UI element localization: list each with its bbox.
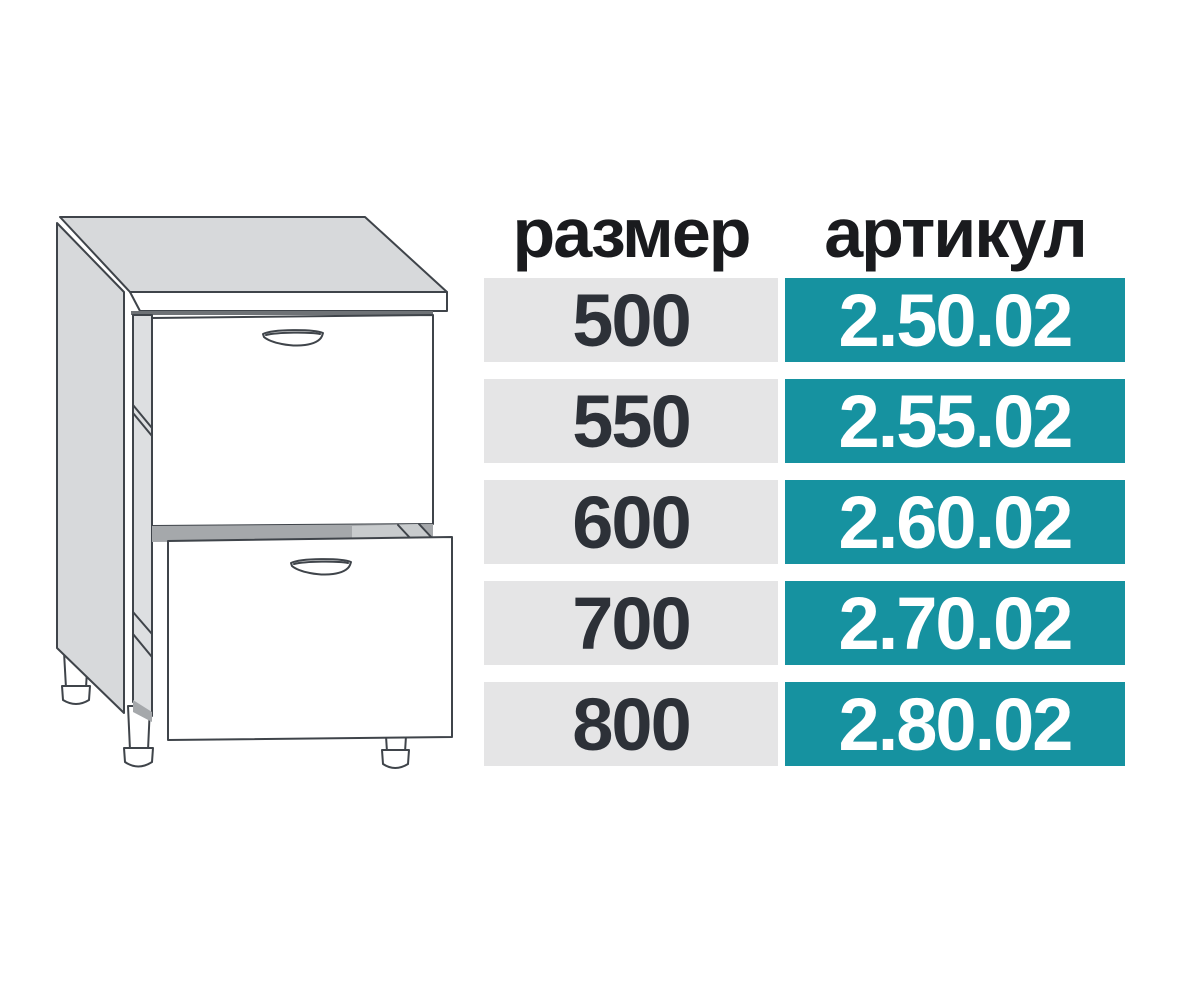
article-cell: 2.70.02 xyxy=(785,581,1125,665)
table-row: 500 2.50.02 xyxy=(484,278,1125,362)
size-cell: 500 xyxy=(484,278,778,362)
cabinet-illustration xyxy=(40,190,470,790)
column-header-size: размер xyxy=(484,193,778,273)
size-cell: 800 xyxy=(484,682,778,766)
size-cell: 600 xyxy=(484,480,778,564)
article-cell: 2.80.02 xyxy=(785,682,1125,766)
size-cell: 700 xyxy=(484,581,778,665)
article-cell: 2.50.02 xyxy=(785,278,1125,362)
article-cell: 2.55.02 xyxy=(785,379,1125,463)
table-row: 800 2.80.02 xyxy=(484,682,1125,766)
size-cell: 550 xyxy=(484,379,778,463)
article-cell: 2.60.02 xyxy=(785,480,1125,564)
cabinet-left-panel xyxy=(57,223,124,713)
size-article-table: размер артикул 500 2.50.02 550 2.55.02 6… xyxy=(484,188,1125,783)
table-row: 600 2.60.02 xyxy=(484,480,1125,564)
table-row: 550 2.55.02 xyxy=(484,379,1125,463)
table-row: 700 2.70.02 xyxy=(484,581,1125,665)
cabinet-foot-right xyxy=(382,736,409,768)
table-header-row: размер артикул xyxy=(484,188,1125,278)
upper-drawer xyxy=(152,315,433,526)
cabinet-side-edge xyxy=(133,315,152,722)
column-header-article: артикул xyxy=(785,193,1125,273)
